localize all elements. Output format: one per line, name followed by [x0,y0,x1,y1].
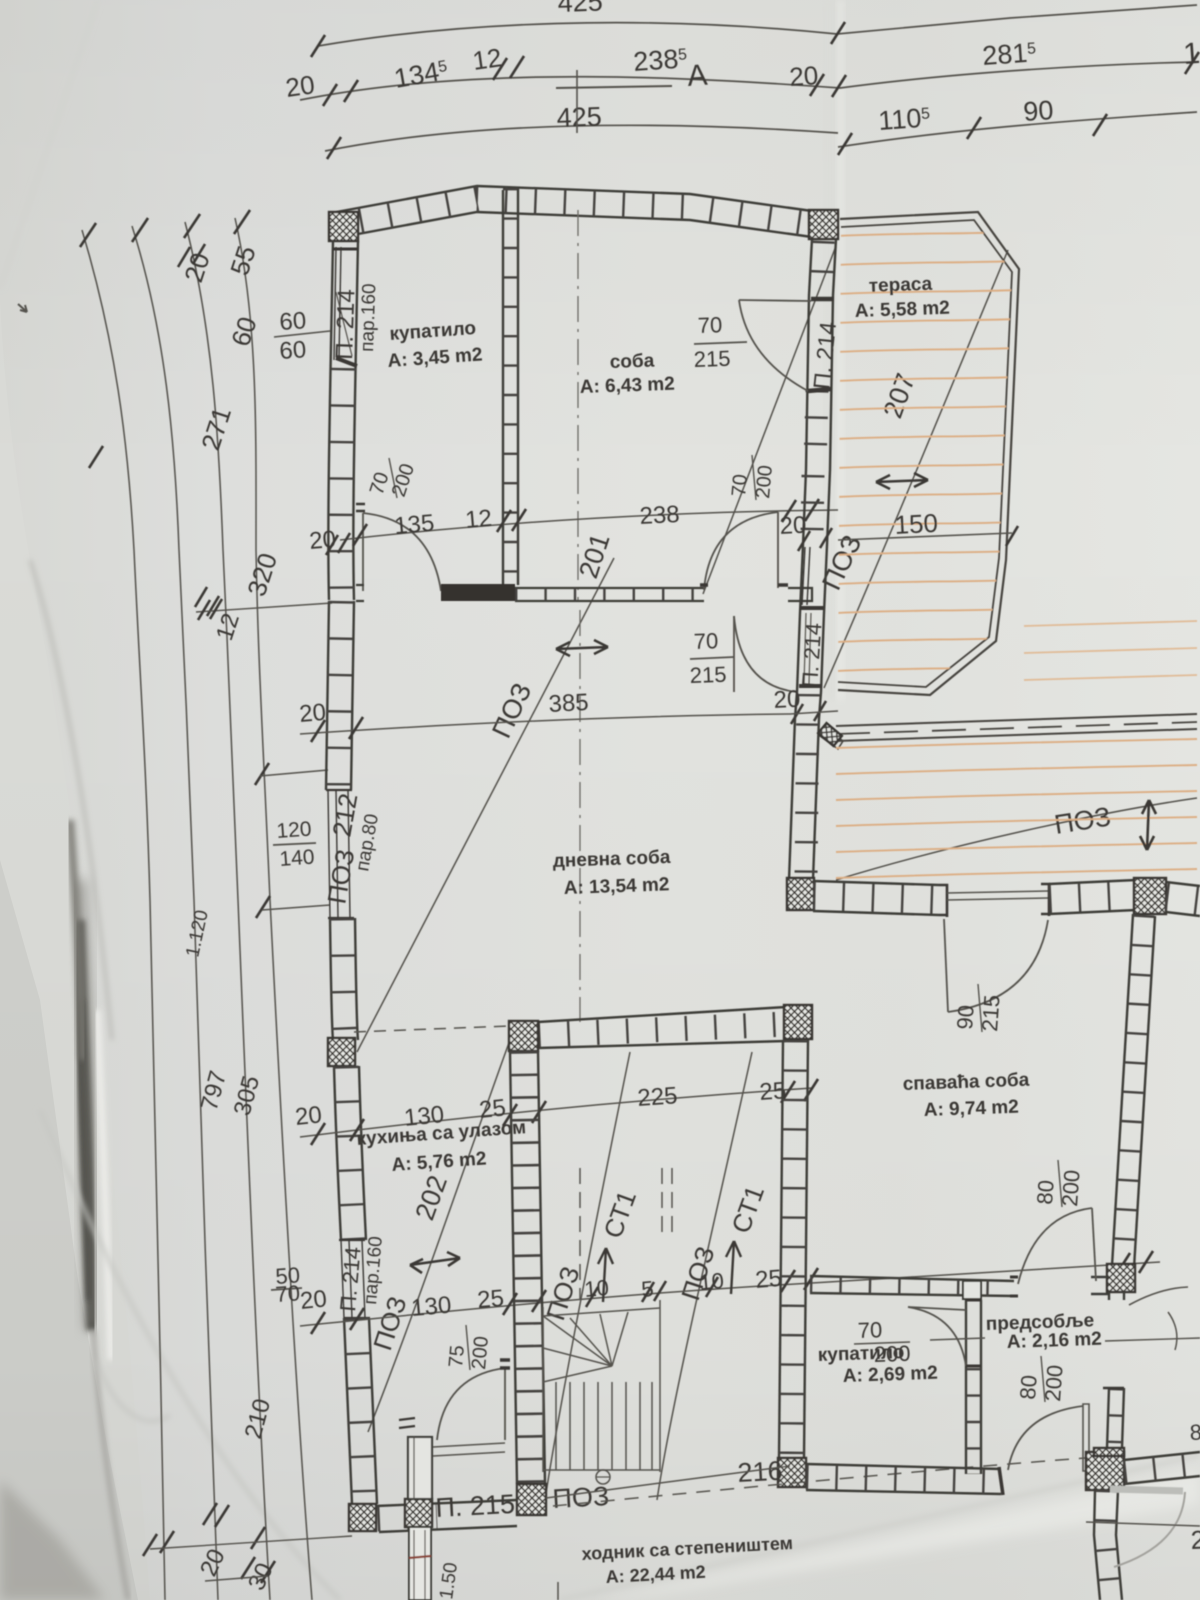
svg-text:425: 425 [557,0,603,18]
svg-text:70: 70 [275,1280,301,1307]
svg-text:12: 12 [1182,36,1200,71]
svg-text:2: 2 [1190,1525,1200,1555]
svg-text:140: 140 [279,846,316,871]
svg-text:12: 12 [471,42,504,76]
svg-text:75: 75 [445,1344,469,1368]
svg-text:ПОЗ: ПОЗ [552,1481,610,1514]
svg-text:П. 214: П. 214 [331,289,360,361]
svg-text:120: 120 [276,818,313,843]
svg-text:90: 90 [1022,95,1054,127]
svg-text:238: 238 [639,501,680,530]
svg-text:60: 60 [279,307,308,336]
svg-text:A: 5,58 m2: A: 5,58 m2 [854,298,950,322]
svg-text:130: 130 [403,1101,446,1132]
svg-text:200: 200 [873,1341,911,1367]
svg-text:215: 215 [689,662,727,688]
svg-text:дневна соба: дневна соба [552,847,671,872]
svg-text:130: 130 [410,1292,452,1322]
svg-text:200: 200 [1057,1169,1085,1207]
svg-text:425: 425 [556,101,602,133]
svg-text:A: 2,16 m2: A: 2,16 m2 [1006,1329,1102,1353]
svg-text:135: 135 [393,510,435,540]
svg-text:A: A [686,59,708,93]
svg-text:80: 80 [1032,1179,1059,1205]
svg-text:70: 70 [857,1317,882,1343]
svg-text:20: 20 [299,1285,328,1315]
svg-text:20: 20 [298,699,327,728]
svg-text:10: 10 [698,1268,725,1295]
svg-text:80: 80 [1015,1374,1042,1400]
svg-text:200: 200 [468,1335,493,1370]
svg-text:A: 6,43 m2: A: 6,43 m2 [579,374,675,398]
svg-text:20: 20 [779,512,807,540]
svg-text:70: 70 [728,473,752,497]
svg-text:5: 5 [640,1276,654,1302]
svg-text:A: 13,54 m2: A: 13,54 m2 [563,874,669,899]
svg-text:70: 70 [693,628,718,654]
svg-text:215: 215 [693,346,731,372]
svg-text:тераса: тераса [868,274,933,297]
svg-text:соба: соба [609,350,655,373]
svg-text:П. 214: П. 214 [797,622,826,688]
svg-text:25: 25 [754,1265,783,1294]
svg-text:20: 20 [284,69,317,103]
svg-text:20: 20 [788,60,819,92]
svg-text:12: 12 [464,505,493,534]
svg-text:25: 25 [478,1094,507,1124]
svg-text:385: 385 [548,689,589,718]
svg-text:20: 20 [294,1101,323,1131]
svg-text:200: 200 [752,464,777,499]
svg-text:225: 225 [637,1082,679,1112]
svg-text:150: 150 [894,508,939,540]
svg-text:20: 20 [308,526,337,555]
svg-text:90: 90 [952,1004,979,1030]
svg-text:215: 215 [977,994,1005,1032]
svg-text:8: 8 [1189,1420,1200,1445]
svg-text:спаваћа соба: спаваћа соба [902,1070,1030,1095]
svg-text:пар.160: пар.160 [357,283,380,352]
svg-text:A: 9,74 m2: A: 9,74 m2 [923,1097,1019,1121]
svg-text:200: 200 [1040,1364,1068,1402]
svg-text:20: 20 [773,686,801,714]
svg-text:10: 10 [583,1275,610,1302]
svg-text:70: 70 [697,312,722,338]
svg-text:60: 60 [279,336,308,365]
svg-text:25: 25 [476,1285,505,1314]
svg-text:П. 215: П. 215 [435,1489,516,1523]
